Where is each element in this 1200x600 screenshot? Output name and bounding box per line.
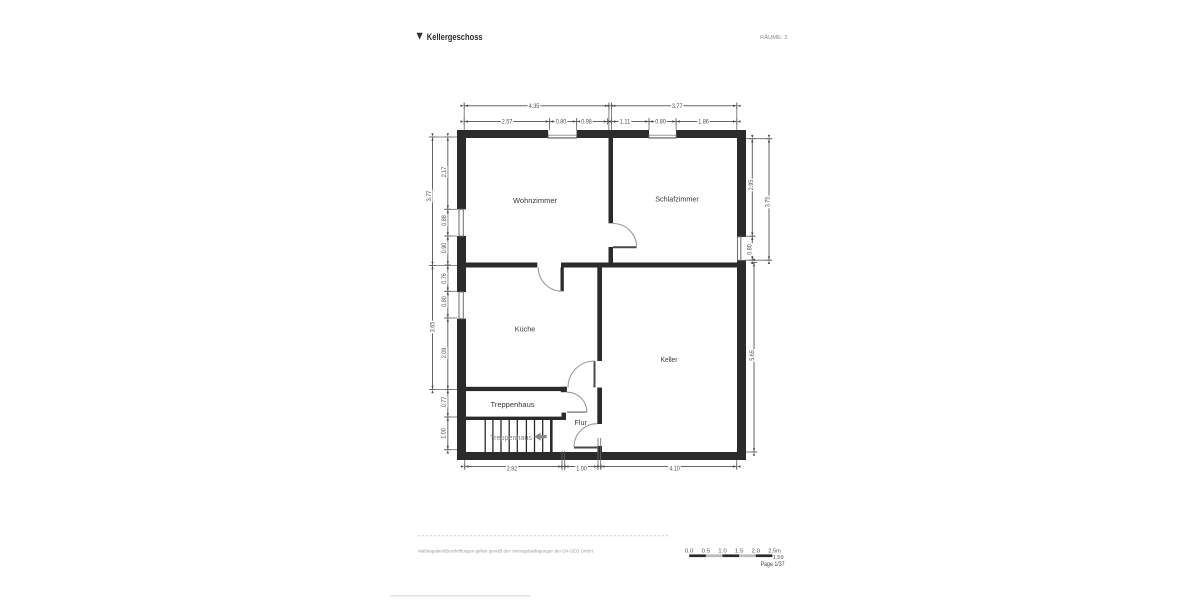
svg-text:0.88: 0.88 (442, 215, 448, 226)
svg-text:2.0: 2.0 (752, 549, 761, 555)
svg-text:1.86: 1.86 (698, 120, 709, 126)
svg-text:3.75: 3.75 (765, 196, 771, 207)
svg-text:Küche: Küche (515, 325, 536, 334)
svg-text:RÄUME: 2: RÄUME: 2 (760, 34, 788, 41)
svg-text:2.09: 2.09 (442, 347, 448, 358)
svg-text:Treppenhaus: Treppenhaus (490, 433, 532, 442)
svg-text:2.57: 2.57 (502, 120, 513, 126)
svg-text:3.77: 3.77 (672, 104, 683, 110)
svg-text:2.92: 2.92 (507, 466, 518, 472)
svg-text:2.5m: 2.5m (768, 549, 781, 555)
svg-text:1.11: 1.11 (620, 120, 631, 126)
svg-text:3.77: 3.77 (427, 190, 433, 201)
svg-text:5.65: 5.65 (750, 350, 756, 361)
svg-text:1.59: 1.59 (773, 555, 784, 561)
svg-text:0.90: 0.90 (442, 242, 448, 253)
svg-text:Keller: Keller (661, 355, 678, 364)
svg-text:0.80: 0.80 (442, 296, 448, 307)
svg-text:4.35: 4.35 (529, 104, 540, 110)
svg-text:Wohnzimmer: Wohnzimmer (513, 196, 557, 205)
svg-text:3.65: 3.65 (431, 321, 437, 332)
svg-text:Maßangaben/Beschriftungen gelt: Maßangaben/Beschriftungen gelten gemäß d… (418, 549, 594, 554)
svg-text:1.00: 1.00 (576, 466, 587, 472)
svg-text:4.10: 4.10 (669, 466, 680, 472)
svg-text:0.0: 0.0 (685, 549, 694, 555)
svg-text:Kellergeschoss: Kellergeschoss (427, 32, 483, 43)
svg-text:0.80: 0.80 (556, 120, 567, 126)
svg-text:0.77: 0.77 (442, 396, 448, 407)
svg-text:Page 1/37: Page 1/37 (761, 562, 786, 568)
svg-text:1.5: 1.5 (735, 549, 744, 555)
svg-text:0.76: 0.76 (442, 273, 448, 284)
svg-text:2.95: 2.95 (749, 179, 755, 190)
svg-text:0.80: 0.80 (655, 120, 666, 126)
svg-text:1.0: 1.0 (718, 549, 727, 555)
svg-text:0.98: 0.98 (581, 120, 592, 126)
svg-text:1.00: 1.00 (442, 428, 448, 439)
svg-text:Schlafzimmer: Schlafzimmer (655, 194, 699, 203)
svg-text:2.17: 2.17 (442, 166, 448, 177)
svg-text:0.5: 0.5 (702, 549, 711, 555)
svg-text:Treppenhaus: Treppenhaus (491, 400, 535, 409)
svg-text:0.80: 0.80 (748, 244, 754, 255)
svg-text:Flur: Flur (574, 418, 587, 427)
